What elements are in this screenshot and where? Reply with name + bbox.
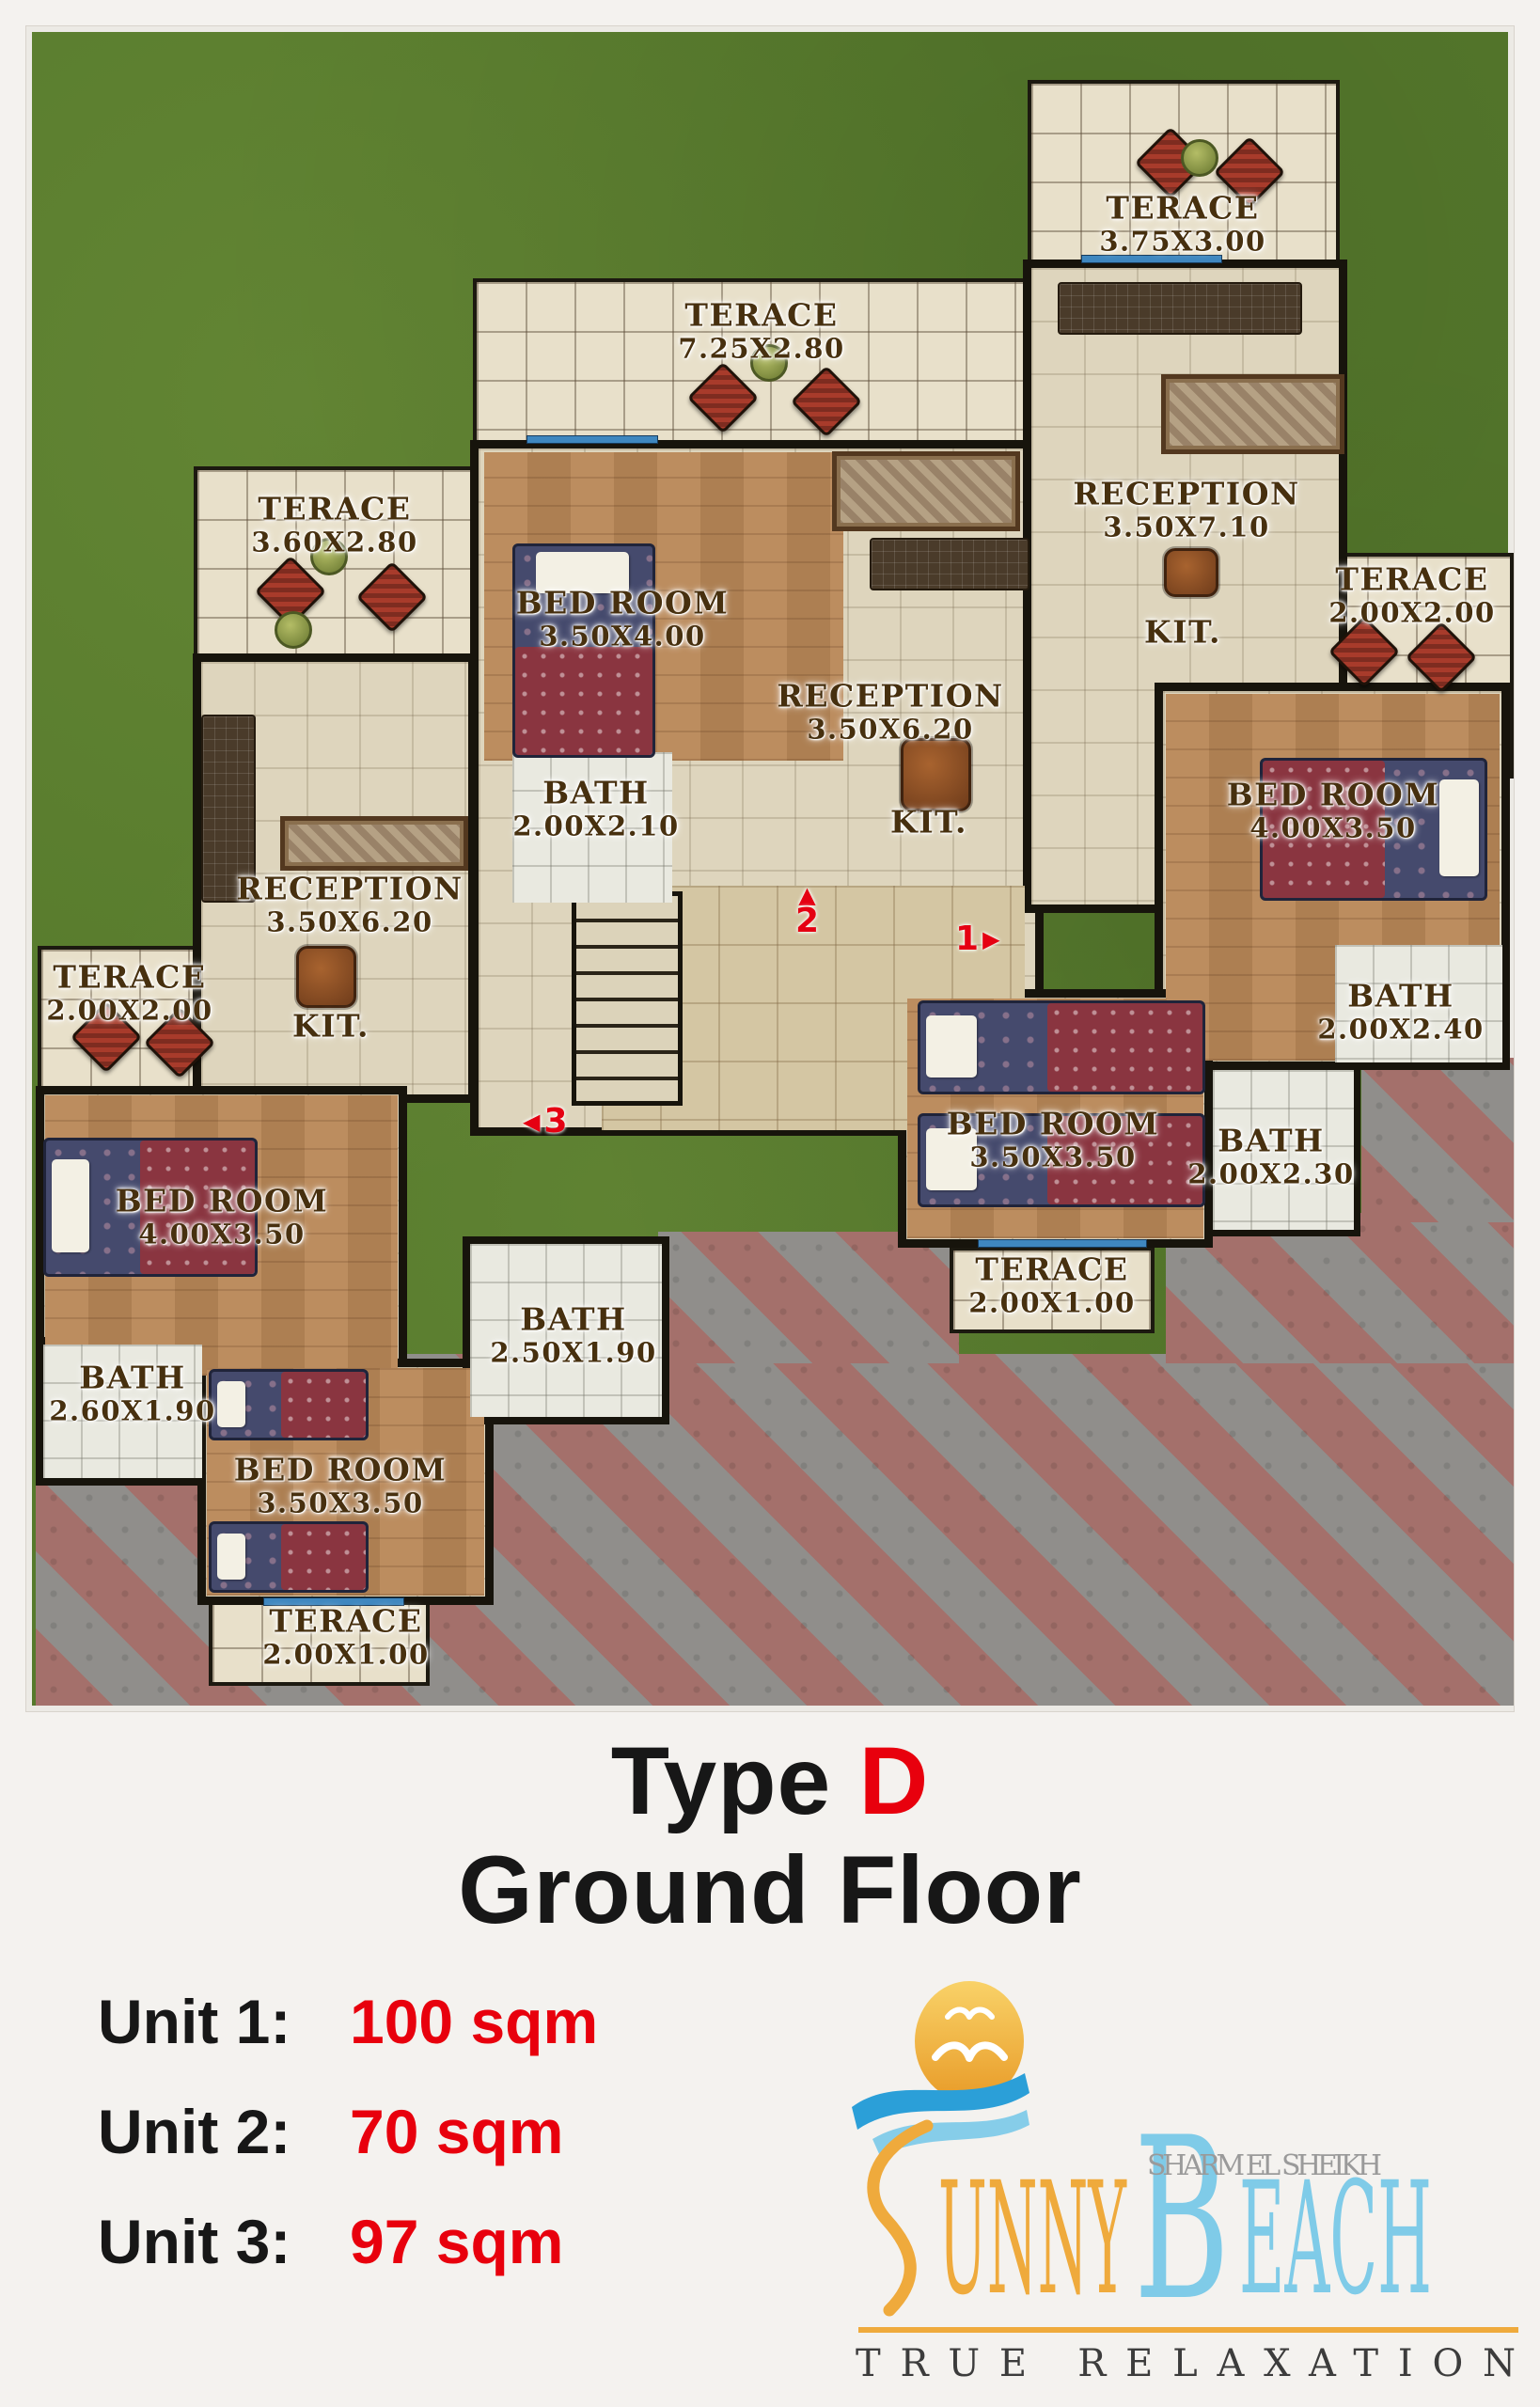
logo-tagline-text: TRUE RELAXATION [856,2342,1516,2385]
room-dims: 3.50X7.10 [1073,511,1299,542]
logo-location-text: SHARM EL SHEIKH [1147,2149,1382,2182]
window-center-bedroom [978,1239,1147,1248]
room-dims: 2.50X1.90 [490,1337,656,1367]
label-reception-left: RECEPTION3.50X6.20 [236,872,463,936]
room-name: BATH [512,776,679,810]
label-kitchen-right: KIT. [1144,616,1221,651]
entrance-marker-3: ◀3 [523,1102,568,1141]
room-name: BATH [1317,979,1484,1014]
room-name: BED ROOM [116,1184,329,1219]
room-name: BED ROOM [516,586,730,621]
room-dims: 2.60X1.90 [49,1395,215,1425]
room-name: RECEPTION [236,872,463,906]
sunny-beach-logo: UNNY B EACH SHARM EL SHEIKH TRUE RELAXAT… [844,1968,1532,2396]
room-name: RECEPTION [777,679,1003,714]
label-bath-center-bottom: BATH2.50X1.90 [490,1302,656,1367]
label-terace-right: TERACE2.00X2.00 [1328,562,1495,627]
title-type: Type [611,1727,832,1834]
unit-value: 70 sqm [350,2096,563,2167]
rug-left-reception [280,816,468,871]
marker-number: 1 [955,920,979,958]
label-terace-top-right: TERACE3.75X3.00 [1099,191,1265,256]
room-name: TERACE [46,960,212,995]
unit-areas-list: Unit 1: 100 sqm Unit 2: 70 sqm Unit 3: 9… [98,1986,598,2277]
label-bedroom-top: BED ROOM3.50X4.00 [516,586,730,651]
room-name: BATH [490,1302,656,1337]
room-dims: 2.00X2.00 [1328,597,1495,627]
label-bath-right-lower: BATH2.00X2.30 [1187,1124,1354,1188]
room-dims: 3.50X6.20 [777,714,1003,744]
room-name: BED ROOM [234,1453,448,1487]
label-terace-left: TERACE2.00X2.00 [46,960,212,1025]
bed-bottom-left-twin-1 [209,1369,369,1440]
room-name: TERACE [262,1604,429,1639]
logo-divider [858,2327,1518,2333]
pavement-center [658,1232,959,1363]
rug-right-reception [1161,374,1344,454]
marker-number: 2 [795,906,819,936]
label-kitchen-center: KIT. [890,806,967,841]
room-name: TERACE [678,298,844,333]
room-dims: 2.00X1.00 [262,1639,429,1669]
label-bedroom-center: BED ROOM3.50X3.50 [947,1107,1160,1172]
room-name: RECEPTION [1073,477,1299,511]
unit-label: Unit 1: [98,1986,350,2057]
dining-table-center [901,738,971,811]
label-bath-center: BATH2.00X2.10 [512,776,679,841]
plant [275,611,312,649]
room-dims: 3.50X4.00 [516,621,730,651]
label-reception-right: RECEPTION3.50X7.10 [1073,477,1299,542]
arrow-left-icon: ◀ [523,1109,540,1135]
room-dims: 3.60X2.80 [251,527,417,557]
label-bath-left: BATH2.60X1.90 [49,1361,215,1425]
label-terace-top-center: TERACE7.25X2.80 [678,298,844,363]
rug-center-reception [832,451,1020,531]
label-bedroom-bottom-left: BED ROOM3.50X3.50 [234,1453,448,1518]
entrance-marker-2: ▲2 [795,886,819,936]
room-dims: 7.25X2.80 [678,333,844,363]
staircase [572,891,683,1106]
room-dims: 3.50X3.50 [947,1141,1160,1172]
room-name: KIT. [1144,616,1221,651]
plan-title: Type D [0,1726,1540,1836]
unit-row-2: Unit 2: 70 sqm [98,2096,598,2167]
room-name: KIT. [292,1010,369,1045]
room-dims: 4.00X3.50 [1227,812,1440,842]
plant [1181,139,1218,177]
bed-center-twin-1 [918,1000,1205,1094]
room-name: BATH [1187,1124,1354,1158]
label-bedroom-left: BED ROOM4.00X3.50 [116,1184,329,1249]
arrow-right-icon: ▶ [982,926,999,952]
label-bath-right-upper: BATH2.00X2.40 [1317,979,1484,1044]
room-name: BATH [49,1361,215,1395]
bed-bottom-left-twin-2 [209,1521,369,1593]
logo-beach-initial: B [1134,2090,1230,2351]
room-name: TERACE [968,1252,1135,1287]
label-terace-center-bottom: TERACE2.00X1.00 [968,1252,1135,1317]
unit-row-1: Unit 1: 100 sqm [98,1986,598,2057]
room-dims: 2.00X1.00 [968,1287,1135,1317]
label-reception-center: RECEPTION3.50X6.20 [777,679,1003,744]
room-dims: 2.00X2.30 [1187,1158,1354,1188]
plan-subtitle: Ground Floor [0,1835,1540,1945]
room-name: BED ROOM [1227,778,1440,812]
room-dims: 3.50X3.50 [234,1487,448,1518]
unit-row-3: Unit 3: 97 sqm [98,2206,598,2277]
room-dims: 3.50X6.20 [236,906,463,936]
room-name: TERACE [1328,562,1495,597]
sofa-center-reception [870,538,1029,590]
unit-label: Unit 3: [98,2206,350,2277]
label-terace-bottom-left: TERACE2.00X1.00 [262,1604,429,1669]
pavement-right-upper [1361,1058,1514,1222]
dining-table-right [1164,548,1218,597]
sofa-right-reception [1058,282,1302,335]
unit-value: 100 sqm [350,1986,598,2057]
room-name: TERACE [1099,191,1265,226]
label-bedroom-right: BED ROOM4.00X3.50 [1227,778,1440,842]
entrance-marker-1: 1▶ [955,920,1000,958]
room-dims: 2.00X2.00 [46,995,212,1025]
unit-value: 97 sqm [350,2206,563,2277]
room-dims: 4.00X3.50 [116,1219,329,1249]
sunny-initial-swash [873,2126,927,2310]
room-name: BED ROOM [947,1107,1160,1141]
window-top-bedroom [526,435,658,444]
room-dims: 3.75X3.00 [1099,226,1265,256]
room-dims: 2.00X2.40 [1317,1014,1484,1044]
label-kitchen-left: KIT. [292,1010,369,1045]
unit-label: Unit 2: [98,2096,350,2167]
room-name: KIT. [890,806,967,841]
label-terace-upper-left: TERACE3.60X2.80 [251,492,417,557]
title-type-letter: D [859,1727,930,1834]
room-dims: 2.00X2.10 [512,810,679,841]
room-name: TERACE [251,492,417,527]
dining-table-left [296,946,356,1008]
marker-number: 3 [543,1102,567,1141]
logo-sunny-text: UNNY [938,2148,1127,2329]
